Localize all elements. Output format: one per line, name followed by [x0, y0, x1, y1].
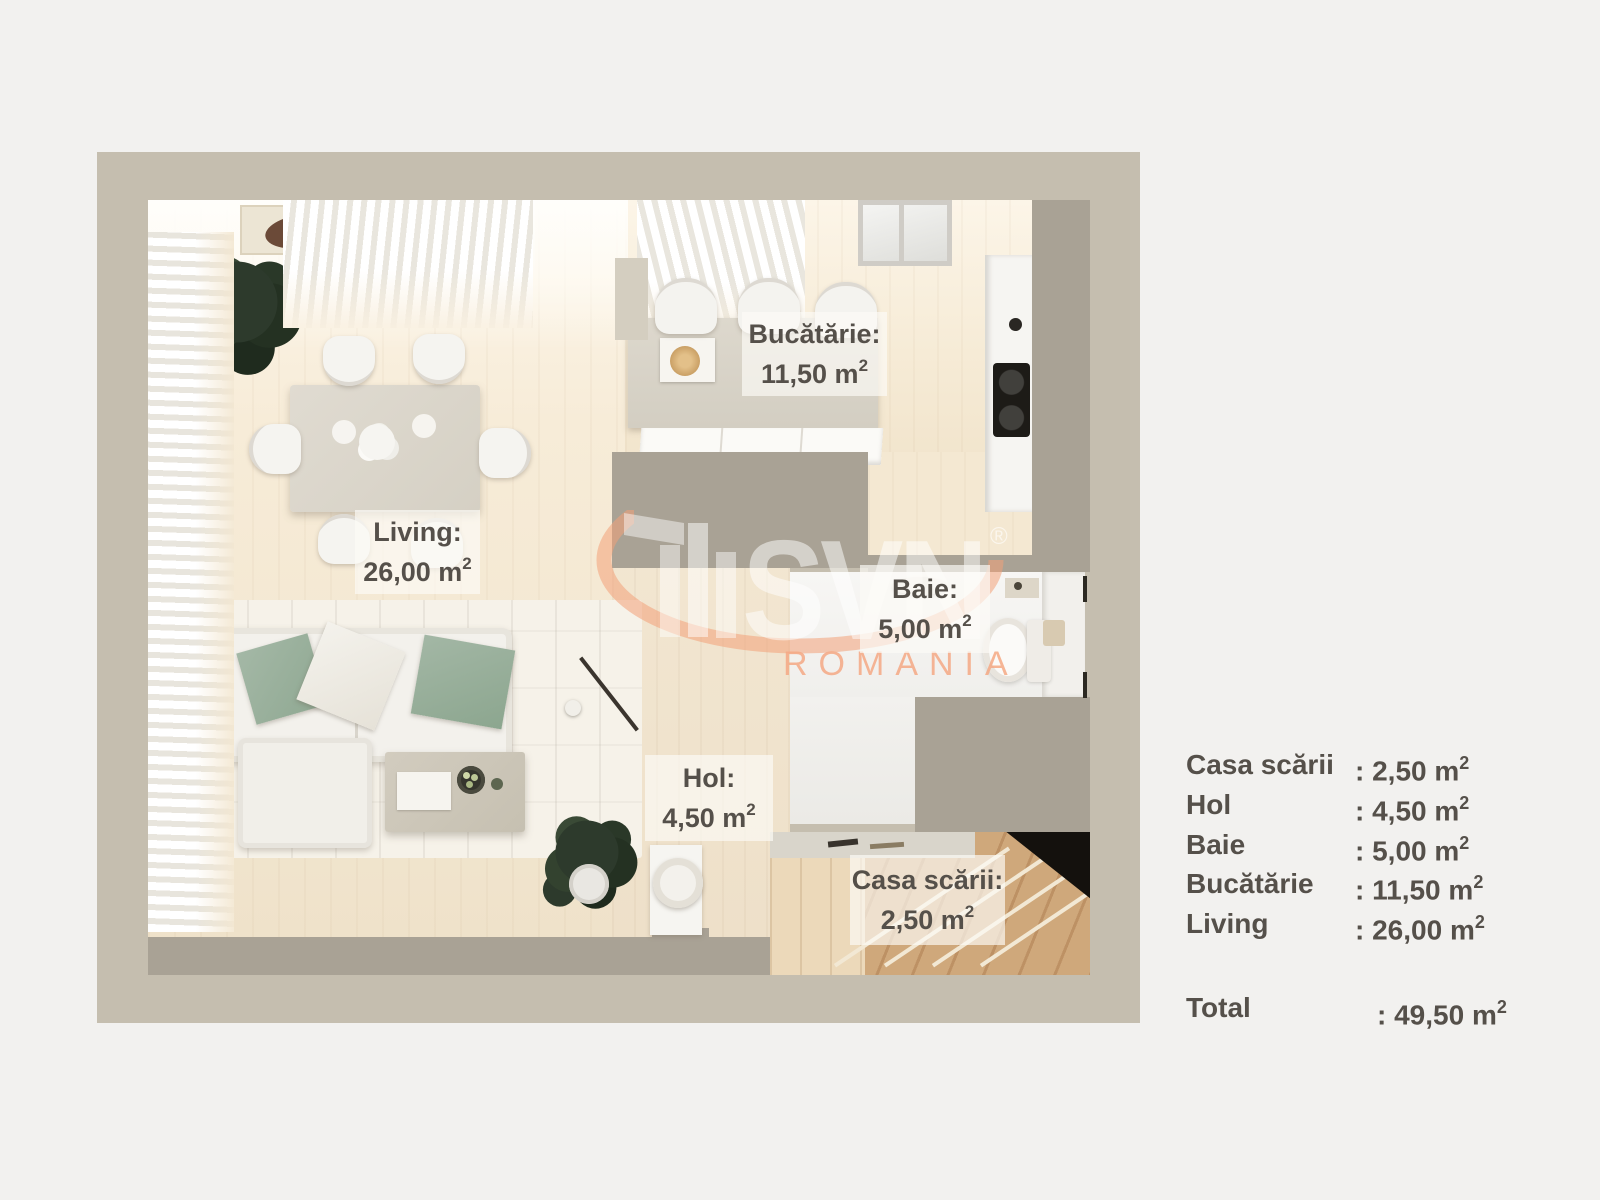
- legend-value: : 5,00 m2: [1355, 828, 1469, 868]
- kitchen-sink-faucet: [1009, 318, 1022, 331]
- room-area: 5,00 m2: [878, 606, 972, 646]
- legend-value: : 11,50 m2: [1355, 867, 1483, 907]
- room-name: Living:: [373, 516, 462, 549]
- toilet: [983, 618, 1033, 682]
- table-centerpiece-flowers: [359, 424, 395, 460]
- room-name: Casa scării:: [852, 864, 1004, 897]
- green-pillow: [411, 635, 515, 730]
- fruit: [463, 772, 470, 779]
- room-name: Bucătărie:: [748, 318, 880, 351]
- kitchen-window: [858, 200, 952, 266]
- room-area: 4,50 m2: [662, 795, 756, 835]
- curtains-top-wall: [283, 200, 533, 328]
- dining-chair: [479, 428, 531, 478]
- sofa-chaise: [238, 738, 372, 848]
- dining-chair: [323, 336, 375, 386]
- legend-label: Baie: [1186, 828, 1355, 868]
- legend-label: Living: [1186, 907, 1355, 947]
- legend-label: Casa scării: [1186, 748, 1355, 788]
- plate: [412, 414, 436, 438]
- room-name: Hol:: [683, 762, 735, 795]
- curtains-left-wall: [148, 232, 234, 932]
- coffee-table-tray: [397, 772, 451, 810]
- bathroom-sink: [1043, 620, 1065, 646]
- dining-chair: [413, 334, 465, 384]
- door-frame-mark: [1083, 672, 1087, 698]
- legend-value: : 2,50 m2: [1355, 748, 1469, 788]
- legend-row-bucatarie: Bucătărie : 11,50 m2: [1186, 867, 1485, 907]
- room-label-living: Living: 26,00 m2: [355, 510, 480, 594]
- interior-wall: [1032, 200, 1090, 572]
- legend-total-label: Total: [1186, 991, 1377, 1032]
- room-area: 11,50 m2: [761, 351, 868, 391]
- area-legend: Casa scării : 2,50 m2 Hol : 4,50 m2 Baie…: [1186, 748, 1485, 947]
- legend-value: : 26,00 m2: [1355, 907, 1485, 947]
- room-label-baie: Baie: 5,00 m2: [860, 565, 990, 653]
- legend-label: Bucătărie: [1186, 867, 1355, 907]
- bread-basket: [670, 346, 700, 376]
- entry-pouf: [653, 858, 703, 908]
- cooktop-icon: [993, 363, 1030, 437]
- floor-lamp-shade: [565, 700, 581, 716]
- room-label-casa-scarii: Casa scării: 2,50 m2: [850, 855, 1005, 945]
- room-label-hol: Hol: 4,50 m2: [645, 755, 773, 841]
- room-label-bucatarie: Bucătărie: 11,50 m2: [742, 312, 887, 396]
- shower-area: [790, 697, 915, 824]
- room-name: Baie:: [892, 573, 958, 606]
- legend-value: : 4,50 m2: [1355, 788, 1469, 828]
- bar-chair: [655, 278, 717, 334]
- bathroom-shelf: [1005, 578, 1039, 598]
- plant-pot: [569, 864, 609, 904]
- floor-plan-page: { "brand": { "name": "SVN", "registered"…: [0, 0, 1600, 1200]
- floor-plan-render: SVN ® ROMANIA Bucătărie: 11,50 m2 Living…: [97, 152, 1140, 1023]
- door-frame-mark: [1083, 576, 1087, 602]
- legend-total-value: : 49,50 m2: [1377, 991, 1507, 1032]
- interior-wall: [652, 928, 709, 975]
- wall-pillar: [615, 258, 648, 340]
- legend-row-hol: Hol : 4,50 m2: [1186, 788, 1485, 828]
- dining-chair: [249, 424, 301, 474]
- legend-label: Hol: [1186, 788, 1355, 828]
- legend-row-baie: Baie : 5,00 m2: [1186, 828, 1485, 868]
- legend-row-casa-scarii: Casa scării : 2,50 m2: [1186, 748, 1485, 788]
- plate: [332, 420, 356, 444]
- kitchen-window-frame: [899, 200, 904, 266]
- legend-total-row: Total : 49,50 m2: [1186, 991, 1507, 1032]
- room-area: 26,00 m2: [363, 549, 472, 589]
- cup: [491, 778, 503, 790]
- bathroom-accessory: [1014, 582, 1022, 590]
- fruit-bowl: [457, 766, 485, 794]
- legend-row-living: Living : 26,00 m2: [1186, 907, 1485, 947]
- interior-wall: [612, 452, 868, 568]
- room-area: 2,50 m2: [881, 897, 975, 937]
- interior-wall: [915, 697, 1090, 832]
